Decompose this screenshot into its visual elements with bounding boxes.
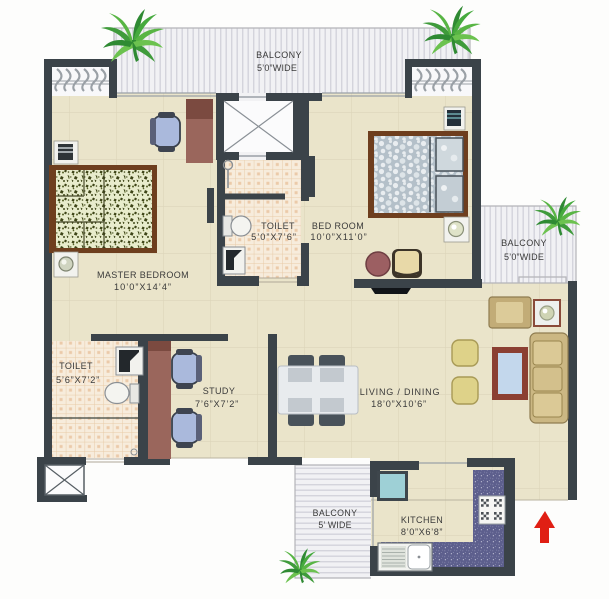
svg-text:5’0”X7’6”: 5’0”X7’6” (251, 232, 297, 242)
svg-text:BALCONY: BALCONY (256, 50, 302, 60)
svg-text:BALCONY: BALCONY (501, 238, 547, 248)
svg-text:18’0”X10’6”: 18’0”X10’6” (371, 399, 427, 409)
svg-text:10’0”X14’4”: 10’0”X14’4” (114, 282, 172, 292)
svg-text:5’6”X7’2”: 5’6”X7’2” (56, 375, 100, 385)
svg-text:5’ WIDE: 5’ WIDE (318, 520, 351, 530)
svg-text:5’0”WIDE: 5’0”WIDE (504, 252, 544, 262)
svg-text:LIVING / DINING: LIVING / DINING (360, 387, 441, 397)
svg-text:8’0”X6’8”: 8’0”X6’8” (401, 527, 443, 537)
svg-text:KITCHEN: KITCHEN (401, 515, 443, 525)
svg-text:TOILET: TOILET (59, 361, 93, 371)
svg-text:7’6”X7’2”: 7’6”X7’2” (195, 399, 239, 409)
svg-text:STUDY: STUDY (203, 386, 236, 396)
svg-text:10’0”X11’0”: 10’0”X11’0” (310, 232, 367, 242)
svg-text:TOILET: TOILET (261, 221, 295, 231)
svg-text:MASTER BEDROOM: MASTER BEDROOM (97, 270, 189, 280)
svg-text:BED ROOM: BED ROOM (312, 221, 364, 231)
svg-text:5’0”WIDE: 5’0”WIDE (257, 63, 297, 73)
svg-text:BALCONY: BALCONY (313, 508, 358, 518)
